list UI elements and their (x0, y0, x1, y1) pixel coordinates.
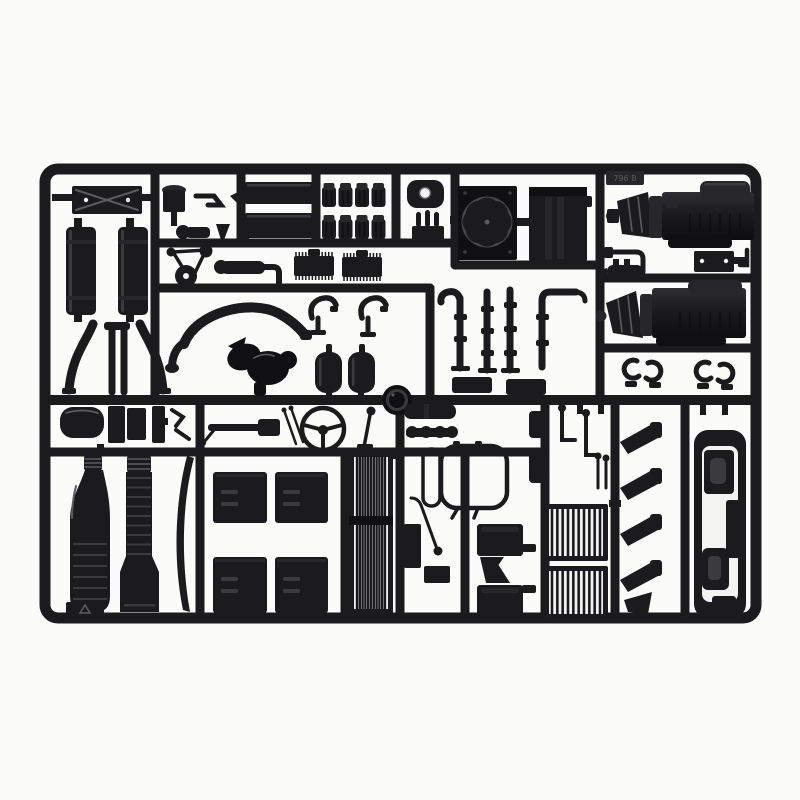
mold-number-text: 796 B (613, 174, 636, 183)
heater-core-grille (349, 452, 393, 614)
crossmember-plate (72, 186, 142, 214)
mirror-pod (60, 407, 104, 438)
wiper-arms (282, 406, 304, 445)
valve-cover-cap (324, 215, 335, 222)
panel-2 (275, 472, 328, 523)
fuel-pump-and-pipe (598, 247, 643, 278)
radiator-core (529, 187, 592, 261)
air-horn-3 (620, 514, 662, 546)
reservoir-tank-right (348, 344, 375, 393)
engine-gearbox-assembly-top (606, 181, 754, 248)
air-tank-left (66, 227, 96, 315)
valve-cover-cap (340, 215, 351, 222)
fan-belt-pulleys (167, 245, 213, 288)
intercooler-body (342, 257, 382, 277)
exhaust-stack-pipes (441, 290, 585, 373)
tank-panel-top (245, 182, 313, 204)
valve-cover-unit (322, 215, 336, 239)
panel-1 (213, 472, 267, 523)
gear-lever (357, 407, 376, 452)
reservoir-tank-left (315, 344, 342, 393)
air-horn-4 (620, 560, 662, 592)
valve-cover-unit (372, 215, 386, 239)
recycle-mark-tag (66, 602, 104, 618)
engine-mount-plate (407, 180, 444, 208)
valve-cover-unit (355, 215, 369, 239)
battery-box-panels (213, 472, 328, 613)
radiator-fan (458, 186, 517, 260)
hook-pipe-left (310, 298, 338, 335)
chassis-rail (694, 430, 746, 618)
valve-cover-unit (339, 215, 353, 239)
panel-3 (213, 557, 267, 613)
small-fittings-cell (162, 185, 248, 241)
spring-shackle-clamps (624, 360, 733, 390)
hook-pipe-right (360, 298, 388, 337)
side-skirt-and-box (404, 524, 450, 583)
engine-mudguards (477, 524, 536, 616)
step-grille-bottom (544, 566, 608, 619)
valve-cover-unit (322, 183, 336, 207)
air-tank-right (118, 227, 148, 315)
bracket-plate-with-holes (694, 250, 747, 272)
sprue-photo: 796 B (0, 0, 800, 800)
turbocharger-cluster (224, 337, 297, 396)
photo-canvas: 796 B (0, 0, 800, 800)
air-horn-5 (624, 592, 652, 614)
panel-4 (275, 557, 328, 613)
tank-panel-bottom (245, 213, 313, 238)
air-horn-2 (620, 468, 662, 500)
steering-wheel (302, 408, 344, 450)
muffler-boxes (452, 377, 546, 395)
hose-loop (423, 449, 440, 506)
small-boxes-row (108, 406, 189, 443)
valve-cover-cap (324, 183, 335, 190)
steering-column (200, 419, 280, 446)
pin-manifold (412, 210, 444, 241)
fender-blade (176, 456, 194, 612)
silencer-and-crankshaft (404, 404, 458, 438)
mold-number-tag: 796 B (606, 171, 644, 185)
intercooler-block (342, 250, 382, 281)
intercooler-block (294, 249, 334, 280)
valve-cover-unit (372, 183, 386, 207)
valve-cover-cap (373, 215, 384, 222)
air-horns (620, 422, 662, 614)
valve-cover-rows (322, 183, 386, 239)
finned-intercoolers (294, 249, 382, 281)
muffler-elbow-pipe (214, 260, 279, 283)
air-cleaner-flask (70, 455, 110, 612)
step-grille-top (544, 504, 608, 561)
valve-cover-cap (373, 183, 384, 190)
intercooler-body (294, 256, 334, 276)
valve-cover-cap (357, 215, 368, 222)
valve-cover-cap (357, 183, 368, 190)
air-intake-bellows (120, 455, 159, 612)
engine-gearbox-assembly-bottom (596, 280, 747, 346)
valve-cover-cap (340, 183, 351, 190)
valve-cover-unit (355, 183, 369, 207)
valve-cover-unit (339, 183, 353, 207)
air-horn-1 (620, 422, 662, 454)
